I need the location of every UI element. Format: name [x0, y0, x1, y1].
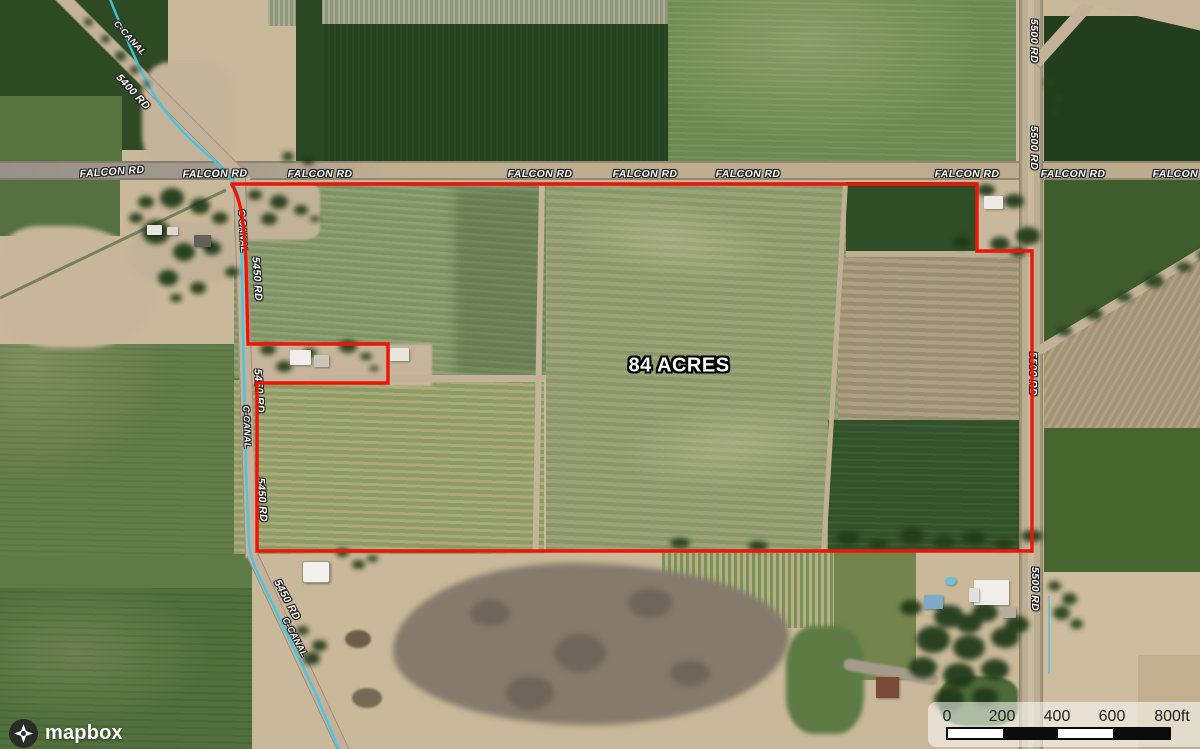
- road-label-5500-rd: 5500 RD: [1028, 126, 1040, 170]
- scale-segment: [1003, 729, 1058, 738]
- field-region: [1044, 428, 1200, 576]
- tree-cluster: [282, 152, 294, 161]
- scale-tick-label: 200: [989, 708, 1016, 726]
- shed: [302, 561, 330, 583]
- tree-cluster: [900, 600, 922, 615]
- field-region: [234, 380, 544, 554]
- tree-cluster: [336, 548, 349, 557]
- tree-cluster: [1044, 78, 1056, 87]
- scale-segment: [1113, 729, 1169, 738]
- scale-segment: [1058, 729, 1113, 738]
- field-region: [455, 188, 545, 374]
- road-label-5500-rd: 5500 RD: [1027, 352, 1039, 396]
- dirt-patch: [345, 630, 371, 648]
- field-region: [668, 0, 1016, 164]
- tree-cluster: [248, 190, 262, 200]
- scale-tick-label: 800ft: [1154, 708, 1190, 726]
- building: [147, 225, 162, 235]
- building: [1002, 607, 1016, 618]
- field-region: [322, 24, 668, 164]
- road-label-falcon-rd: FALCON RD: [935, 168, 1000, 180]
- tree-cluster: [977, 184, 995, 196]
- building-blue-roof: [924, 595, 943, 609]
- road-label-falcon-rd: FALCON RD: [508, 168, 573, 180]
- road-label-5500-rd: 5500 RD: [1029, 567, 1041, 611]
- satellite-map-canvas[interactable]: FALCON RD FALCON RD FALCON RD FALCON RD …: [0, 0, 1200, 749]
- tree-cluster: [260, 344, 276, 355]
- barn: [876, 677, 899, 698]
- mapbox-logo-icon: [9, 719, 38, 748]
- building: [974, 580, 1009, 605]
- mapbox-star-dot: [21, 731, 26, 736]
- farm-track-cross: [846, 251, 1034, 257]
- mapbox-wordmark: mapbox: [45, 722, 123, 745]
- building: [314, 355, 329, 367]
- road-label-falcon-rd: FALCON RD: [716, 168, 781, 180]
- canal-label: C-CANAL: [241, 405, 252, 448]
- field-region: [1044, 16, 1200, 180]
- tree-cluster: [1056, 326, 1072, 336]
- building: [984, 196, 1003, 209]
- road-label-falcon-rd: FALCON RD: [288, 168, 353, 180]
- field-region: [786, 626, 864, 734]
- road-label-falcon-rd: FALCON RD: [182, 167, 247, 180]
- road-label-5500-rd: 5500 RD: [1028, 19, 1040, 63]
- building: [167, 227, 178, 235]
- scale-tick-label: 400: [1044, 708, 1071, 726]
- scale-segment: [948, 729, 1003, 738]
- farm-track-west: [310, 375, 546, 382]
- pool: [945, 577, 956, 585]
- building: [290, 350, 311, 365]
- road-label-falcon-rd: FALCON RD: [1041, 168, 1106, 180]
- field-region: [0, 556, 252, 590]
- tree-cluster: [670, 538, 690, 548]
- scale-tick-label: 600: [1099, 708, 1126, 726]
- building: [390, 348, 409, 361]
- tree-cluster: [138, 196, 154, 208]
- dirt-patch: [393, 563, 789, 725]
- scale-tick-label: 0: [943, 708, 952, 726]
- field-region: [828, 420, 1034, 552]
- tree-cluster: [84, 18, 93, 26]
- field-region: [846, 182, 977, 254]
- tree-cluster: [1048, 581, 1061, 591]
- acreage-label: 84 ACRES: [628, 355, 729, 378]
- dirt-patch: [352, 688, 382, 708]
- building: [969, 588, 979, 602]
- building: [194, 235, 211, 247]
- field-region: [0, 344, 252, 558]
- field-region: [296, 0, 322, 166]
- road-label-falcon-rd: FALCON RD: [613, 168, 678, 180]
- dirt-patch: [470, 600, 510, 626]
- scale-bar: [946, 727, 1171, 740]
- field-region: [838, 256, 1034, 422]
- road-label-falcon-rd: FALCON RD: [1153, 168, 1200, 180]
- dirt-patch: [236, 182, 320, 240]
- field-region: [268, 0, 668, 26]
- mapbox-logo[interactable]: mapbox: [9, 719, 123, 748]
